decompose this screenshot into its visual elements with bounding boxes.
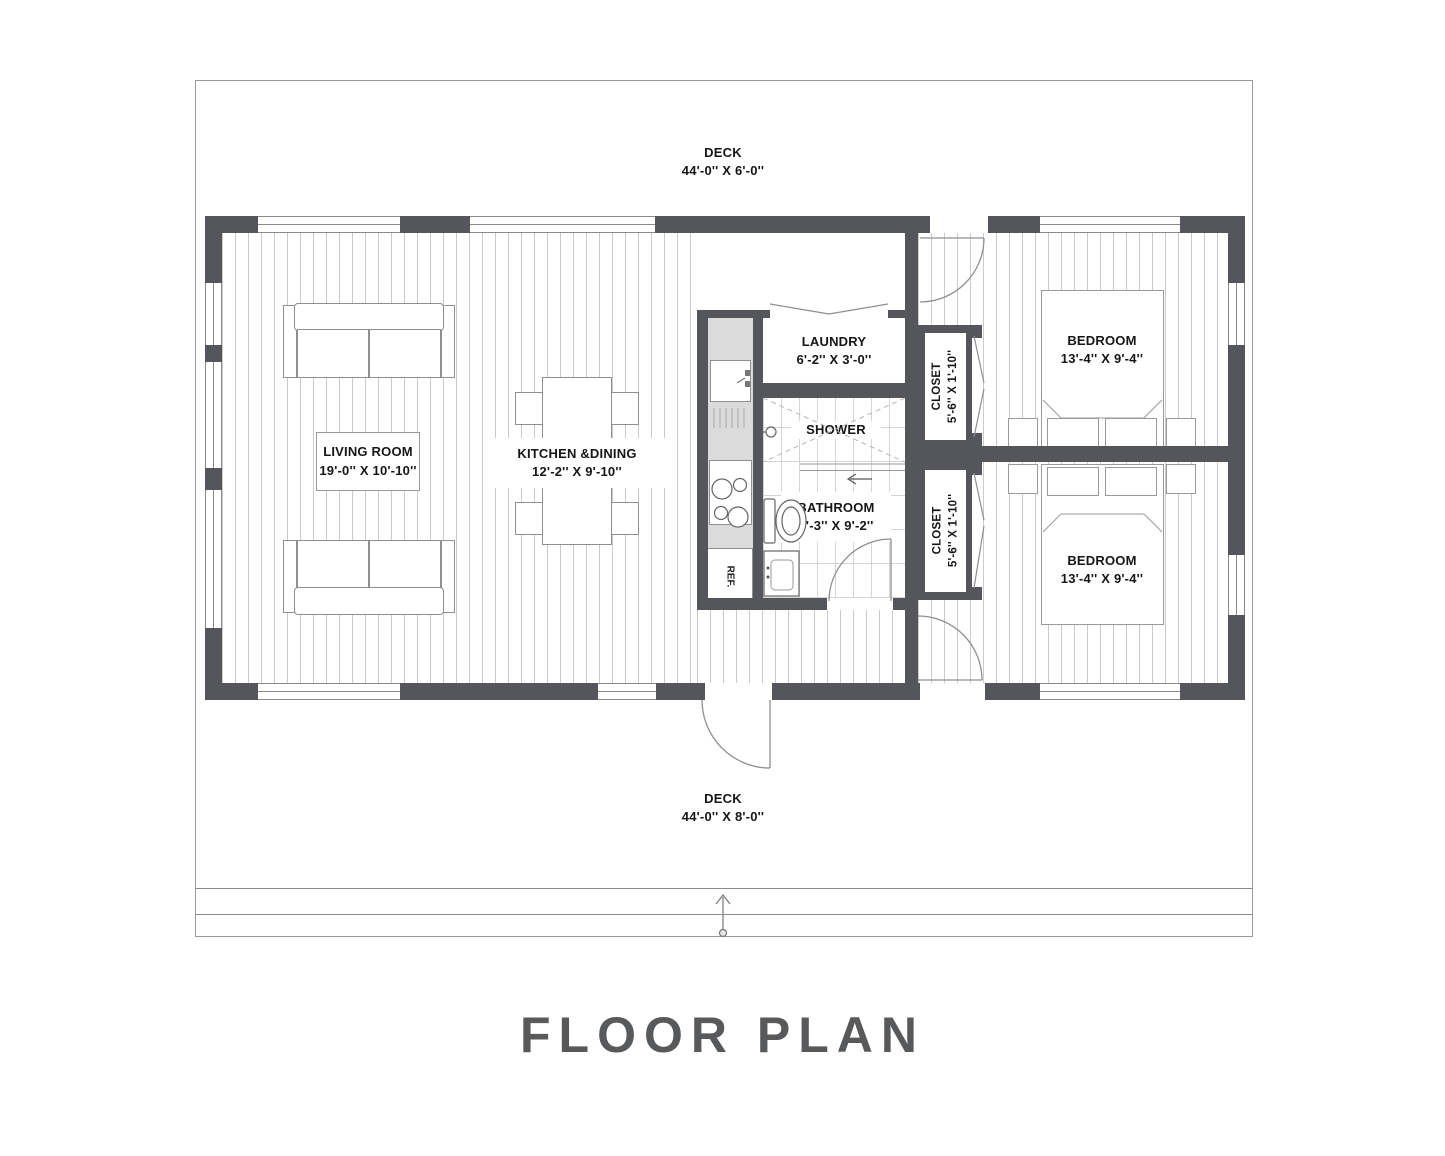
drawing-title: FLOOR PLAN [0, 1006, 1445, 1064]
door-arc-main-entry [702, 700, 770, 768]
kitchen-faucet-spout [737, 378, 745, 383]
floor-plan-canvas: DECK 44'-0'' X 6'-0'' DECK 44'-0'' X 8'-… [0, 0, 1445, 1156]
kitchen-faucet-base [745, 370, 750, 376]
closet-top-sliding-doors [974, 336, 984, 437]
shower-entry-arrow [848, 474, 872, 484]
shower-x-marks [763, 398, 905, 462]
kitchen-faucet [737, 370, 750, 387]
door-arc-bathroom [829, 539, 891, 601]
deck-edge-line [195, 914, 1253, 915]
arrow-origin-dot [720, 930, 727, 937]
faucet-handle [767, 567, 770, 570]
closet-bottom-sliding-doors [974, 473, 984, 588]
cooktop-burners [712, 479, 748, 528]
toilet-bowl-inner [782, 507, 800, 535]
laundry-bifold-doors [770, 304, 888, 314]
burner [712, 479, 732, 499]
door-arc-top-vestibule [920, 238, 984, 302]
toilet-tank [764, 499, 775, 543]
burner [734, 479, 747, 492]
bathroom-vanity [764, 551, 799, 596]
bed-top-blanket-fold [1043, 400, 1162, 418]
linework-overlay [0, 0, 1445, 1156]
dish-drainer [714, 408, 744, 428]
burner [728, 507, 748, 527]
faucet-handle [767, 576, 770, 579]
kitchen-faucet-base [745, 381, 750, 387]
deck-edge-line [195, 888, 1253, 889]
entry-direction-arrow [716, 895, 730, 937]
shower-head [766, 427, 776, 437]
door-arc-bottom-vestibule [918, 616, 982, 680]
bed-bottom-blanket-fold [1043, 514, 1162, 532]
shower-glass-partition [800, 464, 905, 471]
burner [715, 507, 728, 520]
